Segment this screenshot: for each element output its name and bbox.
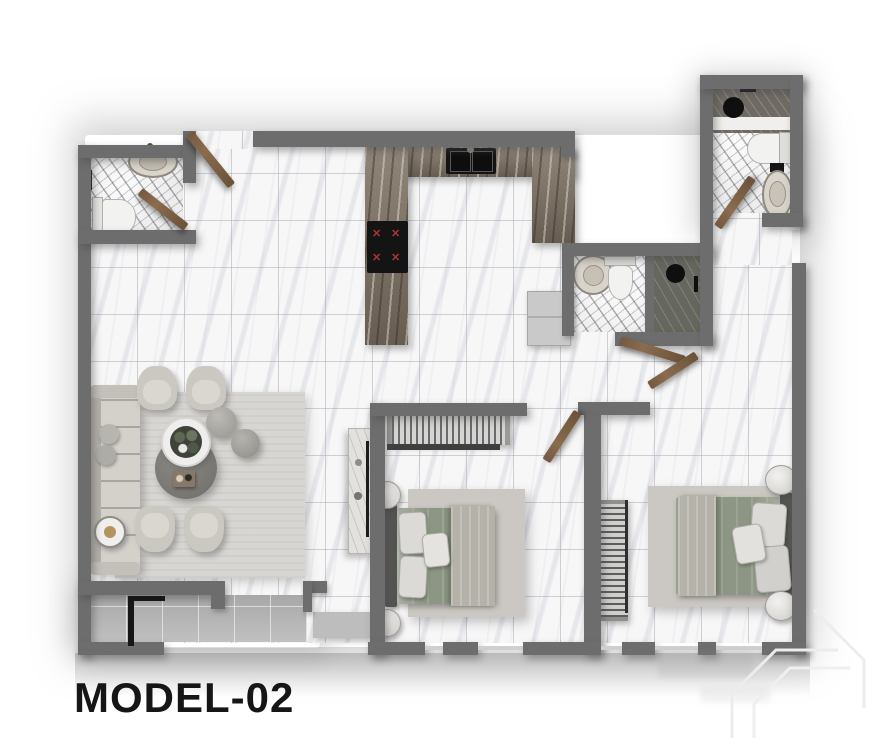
bedroom-1-door [542, 410, 581, 464]
bath-tr-door [714, 175, 756, 229]
model-label: MODEL-02 [74, 674, 294, 722]
watermark-lines-icon [702, 598, 888, 738]
floorplan-canvas: ✕ ✕ ✕ ✕ [0, 0, 890, 740]
bath-tl-door [137, 188, 188, 231]
bath-mid-door [619, 336, 686, 364]
entry-door [186, 131, 235, 189]
